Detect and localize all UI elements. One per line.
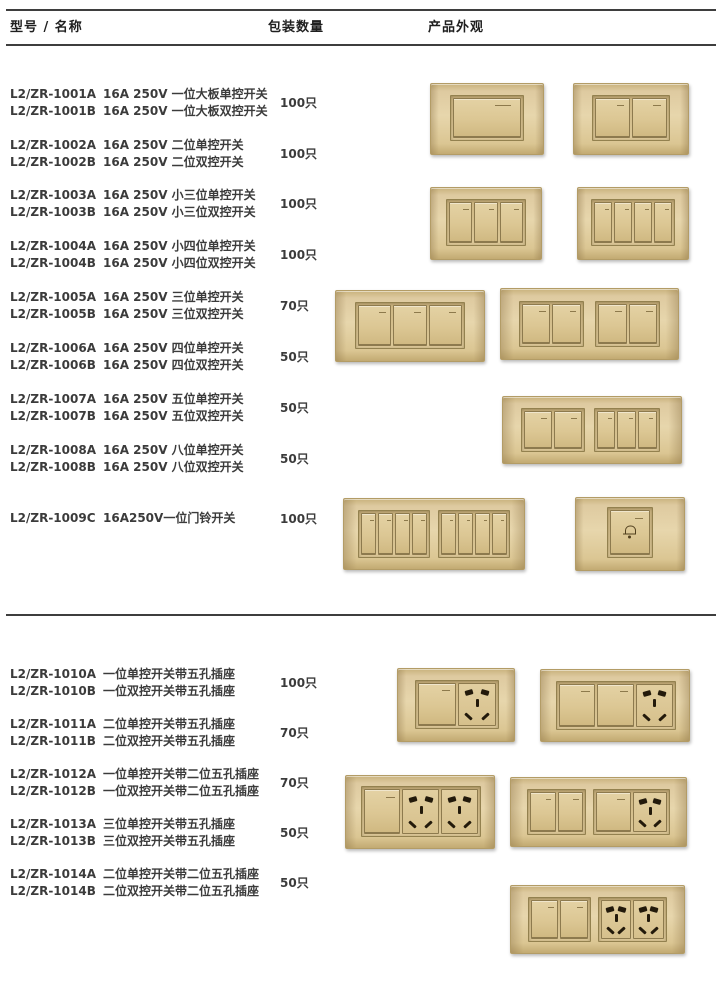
switch-socket-module [593, 789, 670, 835]
socket-hole [658, 713, 667, 721]
five-hole-socket [601, 900, 632, 940]
product-image-1003-three-gang-switch [430, 187, 542, 260]
switch-rocker [598, 304, 627, 344]
switch-module [438, 510, 510, 558]
product-image-1004-four-gang-switch [577, 187, 689, 260]
switch-rocker [554, 411, 582, 449]
product-desc: 16A 250V 四位双控开关 [103, 358, 244, 372]
row-line: L2/ZR-1004A16A 250V 小四位单控开关 [10, 238, 256, 255]
switch-rocker [474, 202, 497, 244]
socket-hole [638, 906, 647, 913]
pack-qty: 100只 [280, 195, 317, 212]
model-code: L2/ZR-1004A [10, 238, 103, 255]
product-desc: 16A 250V 三位双控开关 [103, 307, 244, 321]
switch-rocker [500, 202, 523, 244]
switch-rocker [530, 792, 556, 832]
model-code: L2/ZR-1006B [10, 357, 103, 374]
switch-rocker [594, 202, 612, 244]
switch-rocker [449, 202, 472, 244]
product-desc: 16A 250V 三位单控开关 [103, 290, 244, 304]
product-image-1007-five-gang-wide-switch [502, 396, 682, 464]
model-code: L2/ZR-1002B [10, 154, 103, 171]
product-image-1014-two-switch-with-two-sockets [510, 885, 685, 954]
product-image-1002-two-gang-switch [573, 83, 689, 155]
product-row-1005: L2/ZR-1005A16A 250V 三位单控开关 L2/ZR-1005B16… [10, 289, 244, 323]
five-hole-socket [633, 792, 668, 832]
socket-hole [653, 699, 656, 707]
row-line: L2/ZR-1006A16A 250V 四位单控开关 [10, 340, 244, 357]
product-row-1013: L2/ZR-1013A三位单控开关带五孔插座 L2/ZR-1013B三位双控开关… [10, 816, 235, 850]
socket-hole [408, 820, 417, 828]
socket-hole [653, 798, 662, 805]
socket-hole [458, 806, 461, 814]
pack-qty: 100只 [280, 94, 317, 111]
socket-hole [617, 926, 626, 934]
product-row-1009: L2/ZR-1009C16A250V一位门铃开关 [10, 510, 235, 527]
doorbell-rocker [610, 510, 649, 555]
pack-qty: 50只 [280, 874, 309, 891]
product-desc: 16A 250V 八位单控开关 [103, 443, 244, 457]
socket-hole [476, 699, 479, 707]
socket-hole [642, 713, 651, 721]
socket-hole [650, 926, 659, 934]
catalog-page: 型号 / 名称 包装数量 产品外观 L2/ZR-1001A16A 250V 一位… [0, 0, 722, 986]
model-code: L2/ZR-1010B [10, 683, 103, 700]
model-code: L2/ZR-1013A [10, 816, 103, 833]
product-desc: 二位单控开关带二位五孔插座 [103, 867, 259, 881]
model-code: L2/ZR-1006A [10, 340, 103, 357]
switch-module [528, 897, 590, 943]
switch-rocker [361, 513, 376, 555]
row-line: L2/ZR-1007B16A 250V 五位双控开关 [10, 408, 244, 425]
header-underline-rule [6, 44, 716, 46]
doorbell-icon [623, 525, 637, 538]
row-line: L2/ZR-1010B一位双控开关带五孔插座 [10, 683, 235, 700]
product-desc: 二位双控开关带二位五孔插座 [103, 884, 259, 898]
product-desc: 16A 250V 小三位单控开关 [103, 188, 256, 202]
switch-module [446, 199, 525, 247]
model-code: L2/ZR-1005A [10, 289, 103, 306]
model-code: L2/ZR-1012B [10, 783, 103, 800]
model-code: L2/ZR-1010A [10, 666, 103, 683]
product-row-1001: L2/ZR-1001A16A 250V 一位大板单控开关 L2/ZR-1001B… [10, 86, 268, 120]
socket-hole [464, 689, 473, 696]
socket-hole [606, 926, 615, 934]
model-code: L2/ZR-1007A [10, 391, 103, 408]
row-line: L2/ZR-1008A16A 250V 八位单控开关 [10, 442, 244, 459]
switch-module [594, 408, 660, 452]
socket-hole [647, 914, 650, 922]
socket-hole [447, 796, 456, 803]
socket-hole [650, 906, 659, 913]
product-desc: 三位单控开关带五孔插座 [103, 817, 235, 831]
row-line: L2/ZR-1005B16A 250V 三位双控开关 [10, 306, 244, 323]
switch-module [355, 302, 465, 349]
column-header-model: 型号 / 名称 [10, 16, 83, 35]
model-code: L2/ZR-1014A [10, 866, 103, 883]
product-desc: 16A 250V 八位双控开关 [103, 460, 244, 474]
socket-hole [463, 796, 472, 803]
model-code: L2/ZR-1011B [10, 733, 103, 750]
socket-hole [658, 690, 667, 697]
column-header-qty: 包装数量 [268, 16, 324, 35]
socket-hole [481, 689, 490, 696]
socket-hole [408, 796, 417, 803]
row-line: L2/ZR-1006B16A 250V 四位双控开关 [10, 357, 244, 374]
socket-hole [424, 796, 433, 803]
pack-qty: 50只 [280, 824, 309, 841]
product-desc: 一位双控开关带二位五孔插座 [103, 784, 259, 798]
product-row-1012: L2/ZR-1012A一位单控开关带二位五孔插座 L2/ZR-1012B一位双控… [10, 766, 259, 800]
product-desc: 16A 250V 二位单控开关 [103, 138, 244, 152]
row-line: L2/ZR-1003A16A 250V 小三位单控开关 [10, 187, 256, 204]
switch-rocker [364, 789, 401, 834]
product-desc: 16A 250V 二位双控开关 [103, 155, 244, 169]
product-image-1005-three-gang-wide-switch [335, 290, 485, 362]
model-code: L2/ZR-1013B [10, 833, 103, 850]
product-desc: 二位单控开关带五孔插座 [103, 717, 235, 731]
product-desc: 16A 250V 小四位双控开关 [103, 256, 256, 270]
switch-socket-module [556, 681, 676, 730]
switch-rocker [358, 305, 391, 346]
product-image-1011-two-switch-with-socket [540, 669, 690, 742]
switch-socket-module [415, 680, 499, 730]
model-code: L2/ZR-1003B [10, 204, 103, 221]
five-hole-socket [441, 789, 478, 834]
pack-qty: 70只 [280, 297, 309, 314]
switch-module [595, 301, 660, 347]
socket-hole [638, 798, 647, 805]
product-desc: 16A 250V 五位单控开关 [103, 392, 244, 406]
switch-rocker [475, 513, 490, 555]
switch-rocker [458, 513, 473, 555]
switch-rocker [632, 98, 667, 138]
model-code: L2/ZR-1005B [10, 306, 103, 323]
row-line: L2/ZR-1008B16A 250V 八位双控开关 [10, 459, 244, 476]
model-code: L2/ZR-1012A [10, 766, 103, 783]
model-code: L2/ZR-1003A [10, 187, 103, 204]
switch-rocker [429, 305, 462, 346]
product-desc: 一位单控开关带二位五孔插座 [103, 767, 259, 781]
product-image-1009-doorbell-switch [575, 497, 685, 571]
pack-qty: 100只 [280, 246, 317, 263]
switch-rocker [629, 304, 658, 344]
switch-module [519, 301, 584, 347]
product-desc: 16A 250V 小三位双控开关 [103, 205, 256, 219]
model-code: L2/ZR-1004B [10, 255, 103, 272]
socket-hole [653, 819, 662, 827]
row-line: L2/ZR-1007A16A 250V 五位单控开关 [10, 391, 244, 408]
row-line: L2/ZR-1002B16A 250V 二位双控开关 [10, 154, 244, 171]
bell-clapper [628, 535, 631, 538]
product-desc: 二位双控开关带五孔插座 [103, 734, 235, 748]
socket-hole [638, 819, 647, 827]
switch-rocker [596, 792, 631, 832]
socket-hole [481, 713, 490, 721]
pack-qty: 50只 [280, 450, 309, 467]
row-line: L2/ZR-1012A一位单控开关带二位五孔插座 [10, 766, 259, 783]
model-code: L2/ZR-1008B [10, 459, 103, 476]
switch-module [592, 95, 670, 141]
row-line: L2/ZR-1005A16A 250V 三位单控开关 [10, 289, 244, 306]
product-image-1008-eight-gang-wide-switch [343, 498, 525, 570]
switch-rocker [638, 411, 657, 449]
pack-qty: 100只 [280, 510, 317, 527]
product-row-1014: L2/ZR-1014A二位单控开关带二位五孔插座 L2/ZR-1014B二位双控… [10, 866, 259, 900]
model-code: L2/ZR-1014B [10, 883, 103, 900]
product-image-1012-switch-with-two-sockets [345, 775, 495, 849]
product-row-1003: L2/ZR-1003A16A 250V 小三位单控开关 L2/ZR-1003B1… [10, 187, 256, 221]
model-code: L2/ZR-1008A [10, 442, 103, 459]
row-line: L2/ZR-1012B一位双控开关带二位五孔插座 [10, 783, 259, 800]
row-line: L2/ZR-1011A二位单控开关带五孔插座 [10, 716, 235, 733]
switch-rocker [441, 513, 456, 555]
switch-module [358, 510, 430, 558]
row-line: L2/ZR-1004B16A 250V 小四位双控开关 [10, 255, 256, 272]
switch-rocker [393, 305, 426, 346]
model-code: L2/ZR-1007B [10, 408, 103, 425]
row-line: L2/ZR-1014A二位单控开关带二位五孔插座 [10, 866, 259, 883]
row-line: L2/ZR-1014B二位双控开关带二位五孔插座 [10, 883, 259, 900]
socket-hole [642, 690, 651, 697]
product-desc: 16A 250V 五位双控开关 [103, 409, 244, 423]
top-rule [6, 9, 716, 11]
section-divider-rule [6, 614, 716, 616]
switch-rocker [559, 684, 596, 727]
five-hole-socket [402, 789, 439, 834]
switch-rocker [418, 683, 456, 727]
switch-module [591, 199, 675, 247]
pack-qty: 50只 [280, 399, 309, 416]
socket-hole [447, 820, 456, 828]
socket-hole [463, 820, 472, 828]
row-line: L2/ZR-1003B16A 250V 小三位双控开关 [10, 204, 256, 221]
row-line: L2/ZR-1002A16A 250V 二位单控开关 [10, 137, 244, 154]
product-desc: 一位单控开关带五孔插座 [103, 667, 235, 681]
model-code: L2/ZR-1001A [10, 86, 103, 103]
model-code: L2/ZR-1009C [10, 510, 103, 527]
switch-module [450, 95, 524, 141]
product-image-1013-three-switch-with-socket [510, 777, 687, 847]
row-line: L2/ZR-1001B16A 250V 一位大板双控开关 [10, 103, 268, 120]
pack-qty: 70只 [280, 774, 309, 791]
socket-module [598, 897, 667, 943]
product-row-1010: L2/ZR-1010A一位单控开关带五孔插座 L2/ZR-1010B一位双控开关… [10, 666, 235, 700]
product-desc: 16A250V一位门铃开关 [103, 511, 235, 525]
product-row-1006: L2/ZR-1006A16A 250V 四位单控开关 L2/ZR-1006B16… [10, 340, 244, 374]
socket-hole [638, 926, 647, 934]
socket-hole [420, 806, 423, 814]
switch-rocker [522, 304, 551, 344]
switch-rocker [412, 513, 427, 555]
switch-rocker [595, 98, 630, 138]
pack-qty: 50只 [280, 348, 309, 365]
product-desc: 一位双控开关带五孔插座 [103, 684, 235, 698]
switch-rocker [597, 411, 616, 449]
product-row-1004: L2/ZR-1004A16A 250V 小四位单控开关 L2/ZR-1004B1… [10, 238, 256, 272]
product-row-1002: L2/ZR-1002A16A 250V 二位单控开关 L2/ZR-1002B16… [10, 137, 244, 171]
pack-qty: 70只 [280, 724, 309, 741]
row-line: L2/ZR-1001A16A 250V 一位大板单控开关 [10, 86, 268, 103]
switch-rocker [597, 684, 634, 727]
switch-rocker [378, 513, 393, 555]
row-line: L2/ZR-1013A三位单控开关带五孔插座 [10, 816, 235, 833]
row-line: L2/ZR-1009C16A250V一位门铃开关 [10, 510, 235, 527]
switch-socket-module [361, 786, 481, 837]
switch-rocker [558, 792, 584, 832]
product-image-1001-one-gang-big-switch [430, 83, 544, 155]
switch-rocker [395, 513, 410, 555]
socket-hole [464, 713, 473, 721]
switch-rocker [531, 900, 558, 940]
product-desc: 16A 250V 一位大板单控开关 [103, 87, 268, 101]
switch-rocker [552, 304, 581, 344]
socket-hole [615, 914, 618, 922]
pack-qty: 100只 [280, 674, 317, 691]
five-hole-socket [458, 683, 496, 727]
socket-hole [649, 807, 652, 815]
row-line: L2/ZR-1010A一位单控开关带五孔插座 [10, 666, 235, 683]
product-row-1008: L2/ZR-1008A16A 250V 八位单控开关 L2/ZR-1008B16… [10, 442, 244, 476]
switch-rocker [614, 202, 632, 244]
five-hole-socket [633, 900, 664, 940]
switch-rocker [560, 900, 587, 940]
column-header-appearance: 产品外观 [428, 16, 484, 35]
row-line: L2/ZR-1013B三位双控开关带五孔插座 [10, 833, 235, 850]
product-row-1007: L2/ZR-1007A16A 250V 五位单控开关 L2/ZR-1007B16… [10, 391, 244, 425]
pack-qty: 100只 [280, 145, 317, 162]
model-code: L2/ZR-1002A [10, 137, 103, 154]
socket-hole [617, 906, 626, 913]
product-row-1011: L2/ZR-1011A二位单控开关带五孔插座 L2/ZR-1011B二位双控开关… [10, 716, 235, 750]
product-desc: 16A 250V 四位单控开关 [103, 341, 244, 355]
model-code: L2/ZR-1011A [10, 716, 103, 733]
five-hole-socket [636, 684, 673, 727]
product-desc: 三位双控开关带五孔插座 [103, 834, 235, 848]
switch-rocker [453, 98, 521, 138]
switch-module [607, 507, 652, 558]
product-desc: 16A 250V 小四位单控开关 [103, 239, 256, 253]
model-code: L2/ZR-1001B [10, 103, 103, 120]
switch-rocker [524, 411, 552, 449]
product-desc: 16A 250V 一位大板双控开关 [103, 104, 268, 118]
socket-hole [606, 906, 615, 913]
product-image-1006-four-gang-wide-switch [500, 288, 679, 360]
switch-module [527, 789, 587, 835]
socket-hole [424, 820, 433, 828]
switch-module [521, 408, 585, 452]
product-image-1010-switch-with-socket [397, 668, 515, 742]
switch-rocker [634, 202, 652, 244]
switch-rocker [492, 513, 507, 555]
switch-rocker [617, 411, 636, 449]
row-line: L2/ZR-1011B二位双控开关带五孔插座 [10, 733, 235, 750]
switch-rocker [654, 202, 672, 244]
